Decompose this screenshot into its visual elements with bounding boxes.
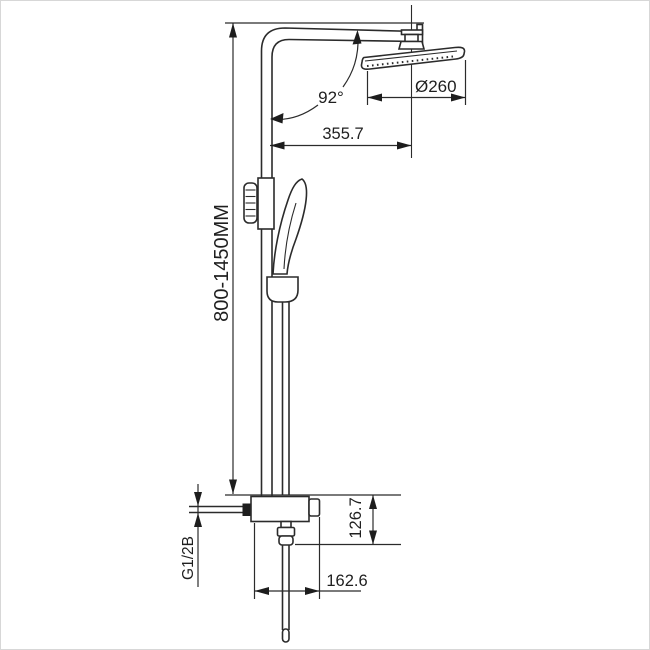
dimension-arm-angle: 92° — [270, 30, 362, 124]
hand-shower-hose-upper — [283, 301, 290, 495]
dim-label-valve-depth: 162.6 — [326, 572, 367, 590]
dimension-height-range: 800-1450MM — [211, 23, 237, 494]
dimension-arm-reach: 355.7 — [270, 125, 412, 150]
dim-arrow-bottom — [229, 480, 237, 495]
dim-arrow-up — [194, 513, 202, 527]
dim-arrow-down — [369, 531, 377, 545]
technical-drawing-page: Ø260 92° 355.7 800-1450MM — [0, 0, 650, 650]
dim-arrow-right — [305, 587, 320, 595]
dim-arrow-top — [229, 23, 237, 38]
dim-arrow-left — [255, 587, 270, 595]
dim-label-arm-angle: 92° — [318, 88, 344, 107]
dim-arrow-down — [194, 492, 202, 506]
dim-arrow-right — [397, 142, 412, 150]
slider-bracket — [258, 178, 274, 229]
connector-stem — [405, 35, 418, 42]
dim-label-arm-reach: 355.7 — [322, 125, 363, 143]
overhead-shower-head — [361, 47, 464, 69]
connector-nut — [399, 42, 424, 50]
dimension-inlet-thread: G1/2B — [180, 484, 202, 587]
head-body — [361, 47, 464, 69]
hose-nut-upper — [278, 528, 295, 537]
rail-slider — [244, 178, 274, 229]
dim-label-valve-height: 126.7 — [347, 497, 365, 538]
valve-body — [251, 497, 309, 522]
hand-shower-hose-lower — [283, 545, 290, 642]
angle-arrow-upper — [353, 30, 362, 45]
dim-label-head-diameter: Ø260 — [415, 77, 457, 96]
dim-arrow-up — [369, 495, 377, 509]
dim-label-inlet-thread: G1/2B — [180, 536, 197, 580]
shower-system-diagram: Ø260 92° 355.7 800-1450MM — [1, 1, 649, 649]
hose-collar — [281, 522, 291, 528]
valve-handle — [309, 499, 320, 516]
hand-shower-holder — [267, 277, 298, 302]
dim-label-height-range: 800-1450MM — [211, 204, 233, 322]
riser-inner-edge — [272, 40, 418, 497]
hose-end-cap — [283, 629, 290, 642]
dim-arrow-left — [368, 94, 383, 102]
mixer-valve — [251, 497, 320, 546]
hose-nut-lower — [279, 536, 293, 545]
